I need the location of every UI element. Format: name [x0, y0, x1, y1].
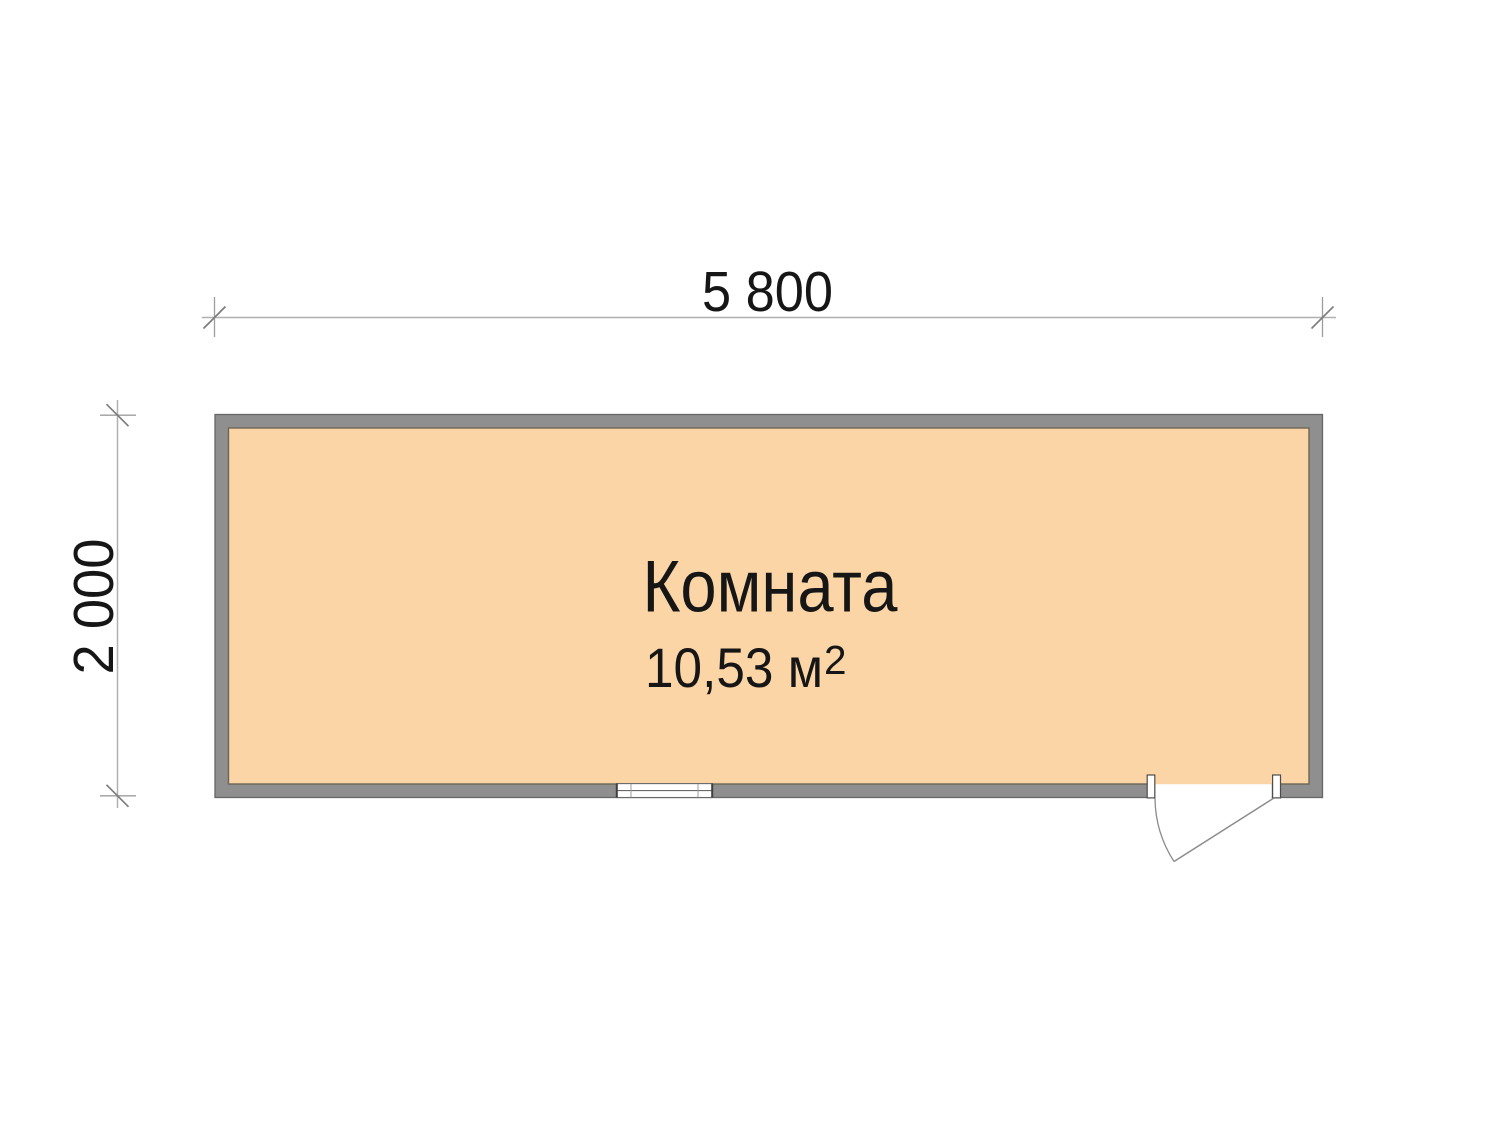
svg-text:Комната: Комната	[643, 546, 898, 627]
svg-text:10,53 м: 10,53 м	[645, 637, 823, 699]
svg-text:2 000: 2 000	[62, 539, 126, 675]
svg-text:2: 2	[824, 637, 847, 683]
svg-text:5 800: 5 800	[702, 260, 833, 324]
